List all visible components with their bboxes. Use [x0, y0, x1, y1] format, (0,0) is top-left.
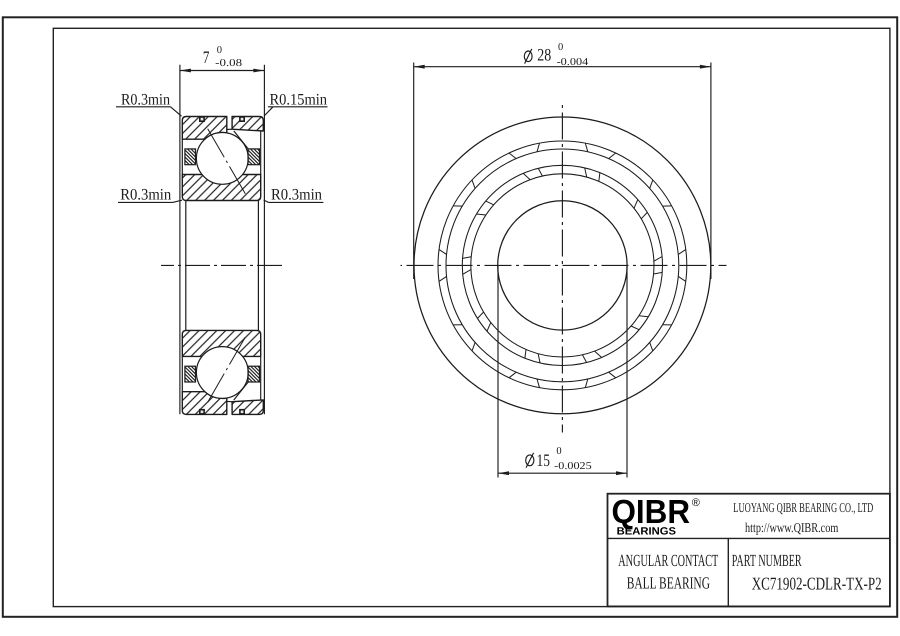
svg-text:-0.08: -0.08 [215, 58, 242, 69]
svg-text:-0.004: -0.004 [557, 57, 589, 68]
svg-text:R0.15min: R0.15min [270, 92, 328, 109]
svg-text:LUOYANG QIBR BEARING CO., LTD: LUOYANG QIBR BEARING CO., LTD [733, 500, 873, 515]
svg-text:BALL BEARING: BALL BEARING [627, 573, 710, 592]
svg-text:®: ® [692, 497, 700, 509]
svg-text:15: 15 [537, 450, 551, 470]
svg-text:28: 28 [537, 44, 551, 64]
svg-text:XC71902-CDLR-TX-P2: XC71902-CDLR-TX-P2 [752, 574, 882, 594]
svg-text:0: 0 [558, 42, 563, 53]
svg-text:ANGULAR CONTACT: ANGULAR CONTACT [618, 551, 718, 570]
svg-text:PART NUMBER: PART NUMBER [732, 551, 802, 570]
svg-text:BEARINGS: BEARINGS [617, 526, 676, 538]
svg-text:0: 0 [556, 446, 561, 457]
svg-text:-0.0025: -0.0025 [554, 461, 592, 472]
svg-text:http://www.QIBR.com: http://www.QIBR.com [745, 520, 839, 535]
svg-text:R0.3min: R0.3min [120, 187, 171, 204]
svg-text:R0.3min: R0.3min [271, 187, 322, 204]
svg-text:0: 0 [217, 45, 222, 56]
svg-text:R0.3min: R0.3min [121, 92, 170, 109]
svg-text:7: 7 [203, 47, 210, 67]
